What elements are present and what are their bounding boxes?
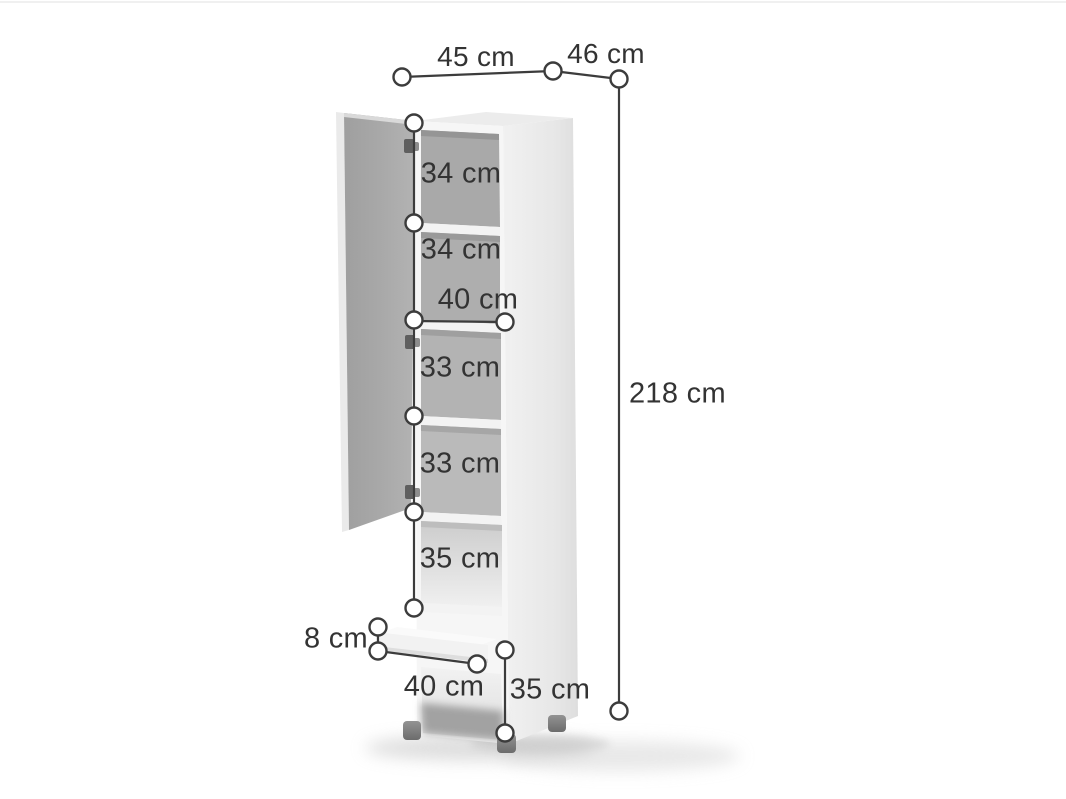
measure-point: [497, 642, 514, 659]
dim-label-compartment-5: 35 cm: [420, 545, 500, 574]
measure-point: [497, 725, 514, 742]
measure-point: [406, 504, 423, 521]
foot-rear-right: [548, 715, 566, 732]
door-inner-face: [344, 113, 415, 530]
product-dimension-diagram: 45 cm 46 cm 218 cm 34 cm 34 cm 40 cm 33 …: [0, 0, 1066, 799]
dim-label-depth-top: 46 cm: [567, 40, 645, 68]
measure-point: [406, 215, 423, 232]
measure-point: [406, 312, 423, 329]
measure-point: [497, 314, 514, 331]
dim-label-interior-width: 40 cm: [438, 286, 518, 315]
measure-point: [370, 643, 387, 660]
dim-line-depth-top: [553, 71, 619, 79]
dim-label-compartment-4: 33 cm: [420, 450, 500, 479]
dim-label-compartment-1: 34 cm: [421, 160, 501, 189]
foot-front-left: [403, 721, 421, 740]
measure-point: [394, 69, 411, 86]
measure-point: [545, 63, 562, 80]
dim-label-width-top: 45 cm: [437, 43, 515, 71]
measure-point: [370, 619, 387, 636]
measure-point: [611, 703, 628, 720]
dim-label-drawer-width: 40 cm: [404, 673, 484, 702]
dim-label-compartment-3: 33 cm: [420, 354, 500, 383]
dim-label-base-height: 35 cm: [510, 676, 590, 705]
measure-point: [406, 408, 423, 425]
dim-label-drawer-height: 8 cm: [304, 625, 368, 654]
measure-point: [406, 115, 423, 132]
dim-label-compartment-2: 34 cm: [421, 236, 501, 265]
floor-shadow: [365, 735, 740, 771]
measure-point: [611, 71, 628, 88]
dim-line-interior-width: [414, 321, 505, 322]
dim-label-total-height: 218 cm: [629, 380, 726, 409]
measure-point: [406, 600, 423, 617]
